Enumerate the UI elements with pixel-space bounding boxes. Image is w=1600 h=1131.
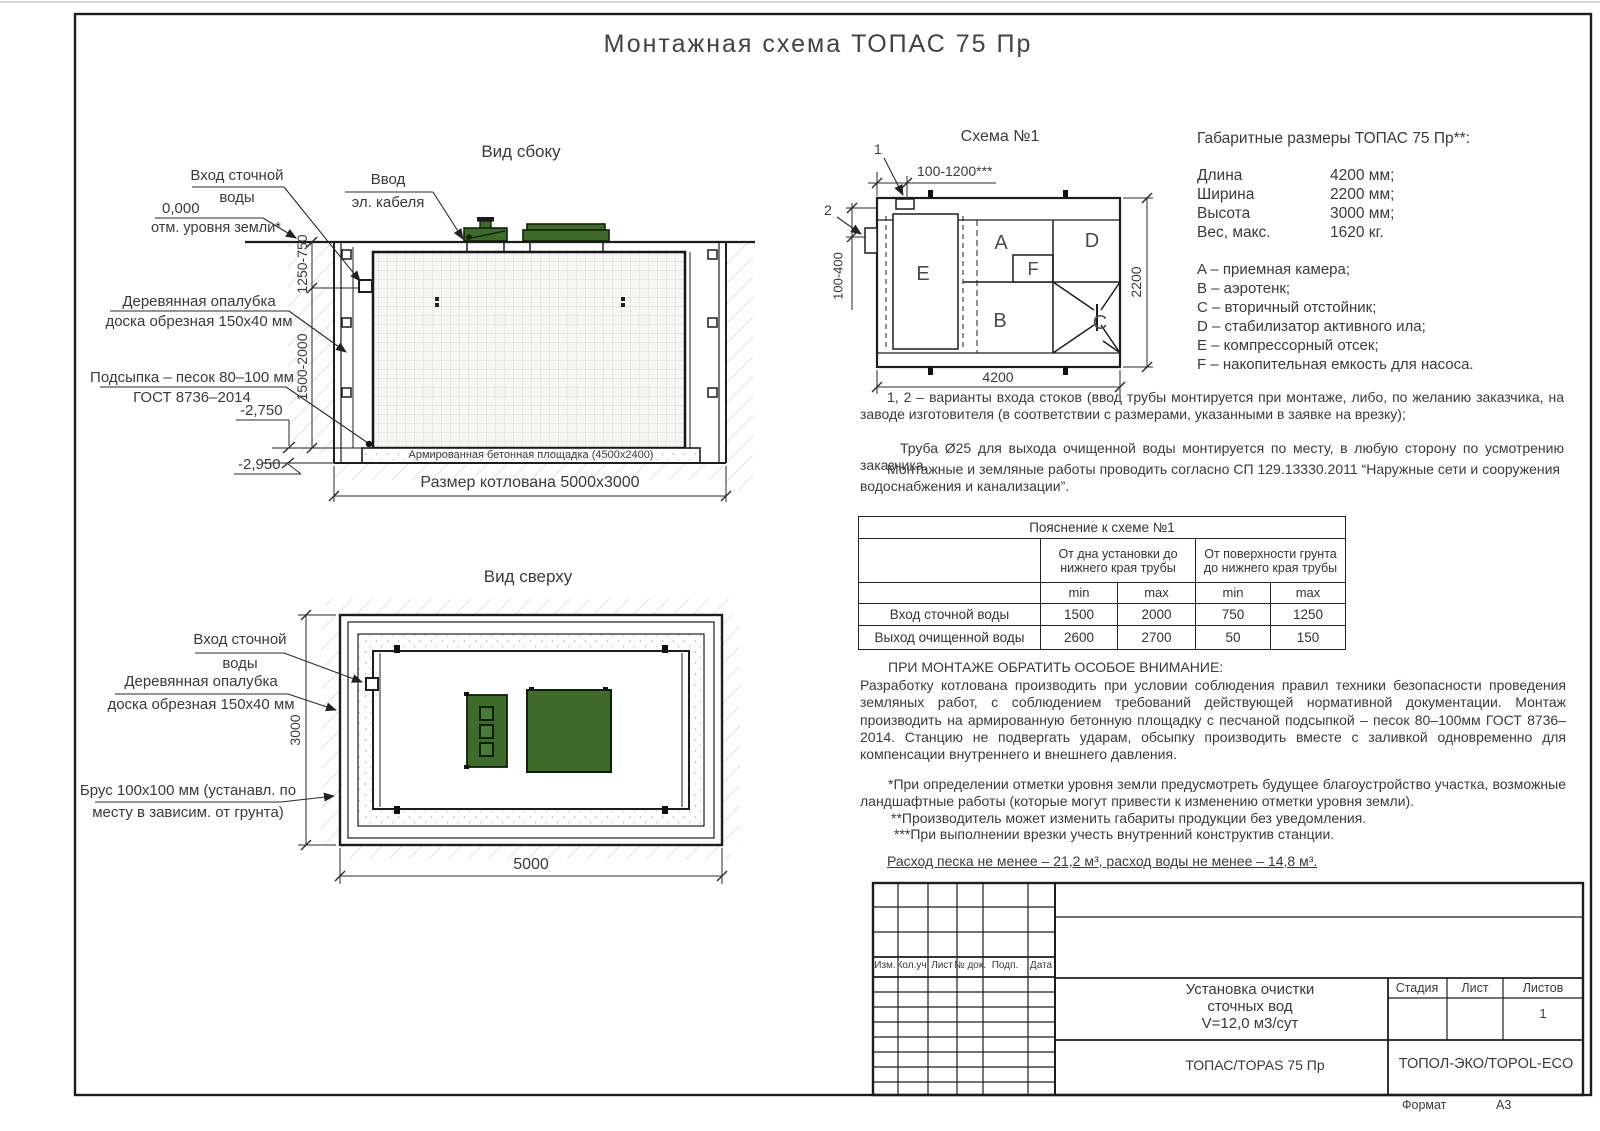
doc-title-line-1: Установка очистки bbox=[1186, 981, 1315, 998]
top-view-inlet-label-2: воды bbox=[222, 655, 257, 672]
table-row: Выход очищенной воды 2600 2700 50 150 bbox=[859, 626, 1346, 650]
doc-title-line-3: V=12,0 м3/сут bbox=[1202, 1015, 1299, 1032]
table-max-header: max bbox=[1271, 583, 1346, 604]
table-title: Пояснение к схеме №1 bbox=[859, 517, 1346, 539]
formwork-label: Деревянная опалубка bbox=[122, 293, 275, 310]
sheets-label: Листов bbox=[1523, 981, 1564, 995]
beam-label-2: месту в зависим. от грунта) bbox=[92, 804, 284, 821]
format-label: Формат bbox=[1402, 1098, 1446, 1112]
spec-weight-value: 1620 кг. bbox=[1330, 224, 1384, 242]
sheets-value: 1 bbox=[1539, 1007, 1546, 1022]
schema-title: Схема №1 bbox=[961, 128, 1040, 146]
table-cell: 150 bbox=[1271, 626, 1346, 650]
spec-height-label: Высота bbox=[1197, 205, 1250, 223]
sheet-label: Лист bbox=[1461, 981, 1488, 995]
cable-entry-label: Ввод bbox=[371, 171, 406, 188]
top-view-title: Вид сверху bbox=[484, 567, 573, 587]
chamber-e-label: E bbox=[916, 263, 929, 286]
model-name: ТОПАС/TOPAS 75 Пр bbox=[1185, 1057, 1324, 1073]
table-empty-cell bbox=[859, 583, 1041, 604]
table-row-name: Вход сточной воды bbox=[859, 604, 1041, 626]
specs-title: Габаритные размеры ТОПАС 75 Пр**: bbox=[1197, 130, 1470, 148]
schema-callout-2: 2 bbox=[824, 202, 832, 218]
table-cell: 2600 bbox=[1041, 626, 1118, 650]
spec-height-value: 3000 мм; bbox=[1330, 205, 1394, 223]
attention-title: ПРИ МОНТАЖЕ ОБРАТИТЬ ОСОБОЕ ВНИМАНИЕ: bbox=[888, 659, 1223, 675]
table-row-name: Выход очищенной воды bbox=[859, 626, 1041, 650]
dim-top-view-length: 5000 bbox=[513, 856, 549, 874]
table-group-2: От поверхности грунта до нижнего края тр… bbox=[1196, 539, 1346, 583]
note-inlet-variants: 1, 2 – варианты входа стоков (ввод трубы… bbox=[860, 389, 1564, 423]
dim-schema-inlet-offset: 100-1200*** bbox=[917, 163, 993, 179]
top-view-hatches bbox=[464, 687, 611, 772]
chamber-a-label: A bbox=[994, 232, 1007, 255]
cable-entry-label-2: эл. кабеля bbox=[352, 194, 425, 211]
side-view-title: Вид сбоку bbox=[481, 142, 560, 162]
stamp-col-ndok: № док. bbox=[954, 960, 986, 972]
beam-label: Брус 100х100 мм (устанавл. по bbox=[80, 782, 296, 799]
spec-length-value: 4200 мм; bbox=[1330, 167, 1394, 185]
drawing-sheet: Монтажная схема ТОПАС 75 Пр Вид сбоку Вх… bbox=[0, 0, 1600, 1131]
table-cell: 750 bbox=[1196, 604, 1271, 626]
doc-title-line-2: сточных вод bbox=[1207, 998, 1292, 1015]
table-max-header: max bbox=[1118, 583, 1196, 604]
stamp-col-podp: Подп. bbox=[992, 960, 1019, 972]
footnote-2: **Производитель может изменить габариты … bbox=[860, 810, 1566, 827]
side-view-inlet-label-2: воды bbox=[219, 189, 254, 206]
chamber-b-label: B bbox=[993, 310, 1006, 333]
stamp-col-izm: Изм. bbox=[874, 960, 895, 972]
stamp-col-data: Дата bbox=[1030, 960, 1052, 972]
sand-bedding-label: Подсыпка – песок 80–100 мм bbox=[90, 369, 294, 386]
top-view-formwork-label-2: доска обрезная 150х40 мм bbox=[107, 696, 294, 713]
legend-item-f: F – накопительная емкость для насоса. bbox=[1197, 356, 1474, 373]
legend-item-b: B – аэротенк; bbox=[1197, 280, 1290, 297]
attention-body: Разработку котлована производить при усл… bbox=[860, 677, 1566, 763]
legend-item-a: A – приемная камера; bbox=[1197, 261, 1350, 278]
stamp-col-koluch: Кол.уч. bbox=[897, 960, 930, 972]
formwork-label-2: доска обрезная 150х40 мм bbox=[105, 313, 292, 330]
dim-inlet-depth: 1250-750 bbox=[294, 234, 310, 293]
spec-length-label: Длина bbox=[1197, 167, 1242, 185]
schema-drawing bbox=[865, 190, 1120, 375]
table-cell: 1250 bbox=[1271, 604, 1346, 626]
footnote-1: *При определении отметки уровня земли пр… bbox=[860, 776, 1566, 811]
table-group-1: От дна установки до нижнего края трубы bbox=[1041, 539, 1196, 583]
page-title: Монтажная схема ТОПАС 75 Пр bbox=[604, 30, 1033, 59]
chamber-c-label: C bbox=[1093, 312, 1107, 335]
ground-elevation-label: отм. уровня земли* bbox=[151, 220, 281, 237]
ground-elevation-value: 0,000 bbox=[162, 200, 200, 217]
table-cell: 2700 bbox=[1118, 626, 1196, 650]
legend-item-e: E – компрессорный отсек; bbox=[1197, 337, 1379, 354]
chamber-d-label: D bbox=[1085, 230, 1099, 253]
spec-width-label: Ширина bbox=[1197, 186, 1254, 204]
page-frame bbox=[0, 2, 1600, 1095]
stamp-col-list: Лист bbox=[931, 960, 953, 972]
top-view-formwork-label: Деревянная опалубка bbox=[124, 673, 277, 690]
table-row: Вход сточной воды 1500 2000 750 1250 bbox=[859, 604, 1346, 626]
spec-width-value: 2200 мм; bbox=[1330, 186, 1394, 204]
company-name: ТОПОЛ-ЭКО/TOPOL-ECO bbox=[1399, 1056, 1574, 1073]
top-view-inlet-label: Вход сточной bbox=[193, 631, 286, 648]
dim-schema-side-inlet: 100-400 bbox=[832, 252, 847, 300]
table-cell: 50 bbox=[1196, 626, 1271, 650]
table-cell: 2000 bbox=[1118, 604, 1196, 626]
schema-explanation-table: Пояснение к схеме №1 От дна установки до… bbox=[858, 516, 1346, 650]
consumption-note: Расход песка не менее – 21,2 м³, расход … bbox=[887, 853, 1317, 869]
elevation-pad: -2,750 bbox=[240, 402, 283, 419]
spec-weight-label: Вес, макс. bbox=[1197, 224, 1271, 242]
legend-item-c: C – вторичный отстойник; bbox=[1197, 299, 1376, 316]
sand-bedding-label-2: ГОСТ 8736–2014 bbox=[133, 389, 251, 406]
table-min-header: min bbox=[1041, 583, 1118, 604]
stage-label: Стадия bbox=[1396, 981, 1439, 995]
table-min-header: min bbox=[1196, 583, 1271, 604]
note-regulations: Монтажные и земляные работы проводить со… bbox=[860, 461, 1560, 495]
schema-callout-1: 1 bbox=[874, 141, 882, 157]
table-cell: 1500 bbox=[1041, 604, 1118, 626]
dim-pit-depth: 1500-2000 bbox=[294, 334, 310, 401]
side-view-lids bbox=[464, 217, 609, 241]
table-empty-cell bbox=[859, 539, 1041, 583]
legend-item-d: D – стабилизатор активного ила; bbox=[1197, 318, 1426, 335]
dim-schema-length: 4200 bbox=[982, 369, 1013, 385]
elevation-bottom: -2,950 bbox=[238, 456, 281, 473]
footnote-3: ***При выполнении врезки учесть внутренн… bbox=[860, 826, 1566, 843]
pit-size-dimension: Размер котлована 5000х3000 bbox=[420, 474, 639, 492]
side-view-inlet-label: Вход сточной bbox=[190, 167, 283, 184]
dim-top-view-width: 3000 bbox=[287, 714, 303, 745]
dim-schema-width: 2200 bbox=[1128, 266, 1144, 297]
chamber-f-label: F bbox=[1028, 259, 1039, 280]
format-value: А3 bbox=[1496, 1098, 1511, 1112]
concrete-pad-label: Армированная бетонная площадка (4500х240… bbox=[409, 449, 654, 462]
